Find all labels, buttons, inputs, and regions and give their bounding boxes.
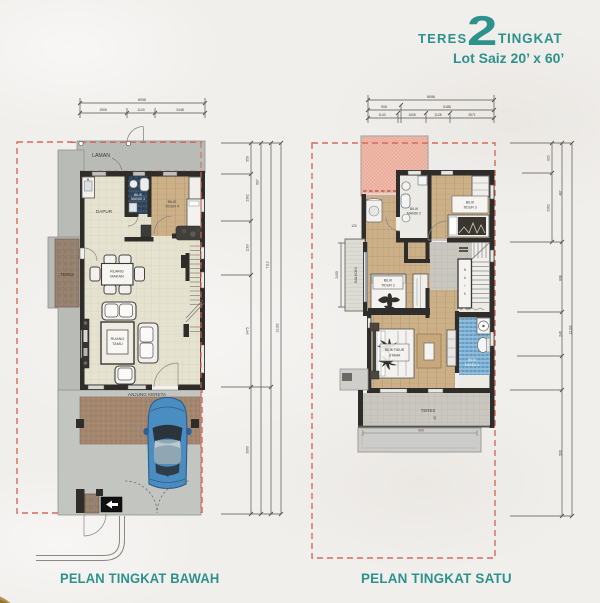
svg-text:3900: 3900 [246,446,250,454]
svg-text:1006: 1006 [408,113,416,117]
svg-text:I: I [465,284,466,288]
svg-text:240: 240 [559,331,563,337]
svg-text:MANDI 1: MANDI 1 [465,363,479,367]
svg-text:BILIK: BILIK [168,200,177,204]
svg-text:LAMAN: LAMAN [92,153,110,159]
svg-text:TIDUR 3: TIDUR 3 [463,206,477,210]
svg-text:40: 40 [433,416,437,420]
svg-text:908: 908 [381,105,387,109]
svg-text:ANJUNG KERETA: ANJUNG KERETA [128,392,167,397]
svg-text:3475: 3475 [246,327,250,335]
svg-text:12192: 12192 [276,323,280,332]
svg-text:6096: 6096 [427,95,435,99]
svg-text:2400: 2400 [335,271,339,279]
svg-text:823: 823 [547,155,551,161]
svg-text:TERES: TERES [60,272,74,277]
svg-text:487: 487 [559,190,563,196]
svg-text:687: 687 [256,179,260,185]
svg-text:2362: 2362 [547,204,551,212]
svg-text:UTAMA: UTAMA [389,354,401,358]
svg-text:RUANG: RUANG [110,270,124,274]
svg-text:MANDI 3: MANDI 3 [131,197,145,201]
svg-text:12192: 12192 [569,325,573,334]
svg-text:5188: 5188 [443,105,451,109]
svg-text:6096: 6096 [138,98,146,102]
svg-text:7112: 7112 [266,261,270,268]
svg-text:TERES: TERES [421,408,436,413]
svg-text:1143: 1143 [378,113,385,117]
svg-text:TIDUR 2: TIDUR 2 [381,284,395,288]
svg-text:BILIK: BILIK [466,201,475,205]
svg-text:400: 400 [418,429,424,433]
svg-text:TAMU: TAMU [112,342,123,346]
svg-text:1128: 1128 [434,113,441,117]
svg-text:2448: 2448 [176,108,184,112]
svg-text:120: 120 [351,224,357,228]
svg-text:BILIK: BILIK [384,279,393,283]
svg-text:2571: 2571 [468,113,476,117]
svg-text:1905: 1905 [99,108,107,112]
svg-text:898: 898 [559,275,563,281]
svg-text:BILIK TIDUR: BILIK TIDUR [385,348,405,352]
svg-text:550: 550 [246,156,250,162]
svg-text:BILIK: BILIK [410,207,419,211]
svg-text:BALKONI: BALKONI [354,267,358,283]
svg-text:2362: 2362 [246,194,250,202]
svg-text:BILIK: BILIK [468,358,477,362]
svg-text:1180: 1180 [246,244,250,251]
svg-text:DAPUR: DAPUR [96,209,113,214]
svg-text:MANDI 2: MANDI 2 [407,212,421,216]
svg-text:RUANG: RUANG [111,337,125,341]
svg-text:TIDUR 4: TIDUR 4 [165,205,179,209]
svg-text:MAKAN: MAKAN [110,275,124,279]
svg-text:1143: 1143 [137,108,144,112]
svg-text:500: 500 [559,450,563,456]
